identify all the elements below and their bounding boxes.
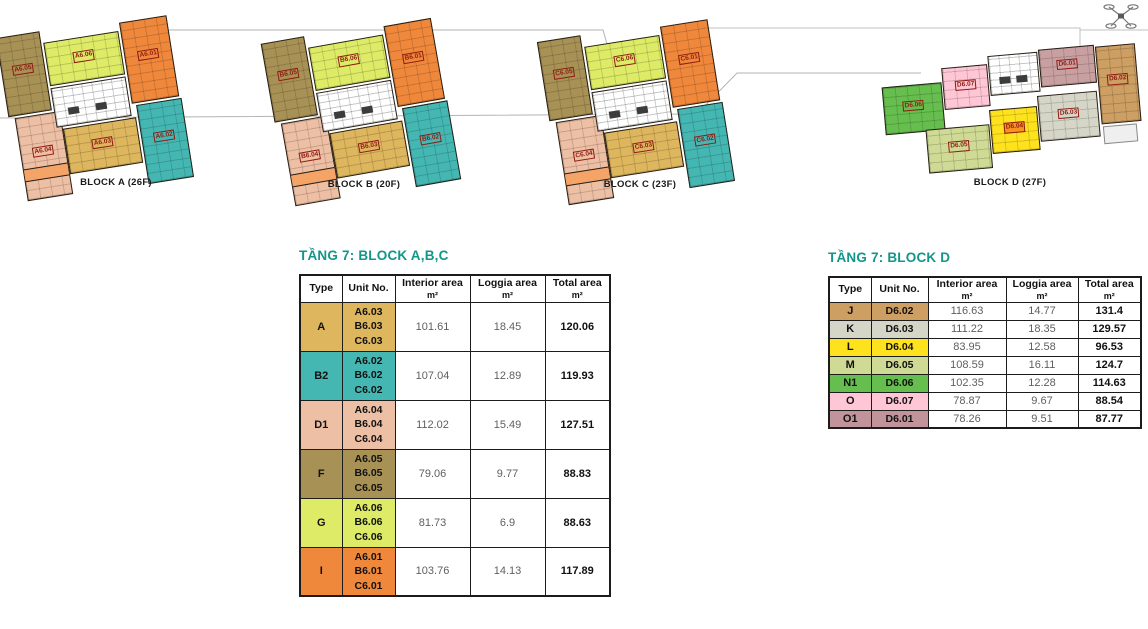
loggia-cell: 14.13 <box>470 547 545 596</box>
unit-label: D6.04 <box>1004 122 1026 134</box>
col-header-unit: Unit No. <box>342 275 395 302</box>
plan-unit: D6.05 <box>925 124 993 173</box>
type-cell: N1 <box>829 374 871 392</box>
interior-cell: 101.61 <box>395 302 470 351</box>
col-header-type: Type <box>829 277 871 302</box>
loggia-cell: 14.77 <box>1006 302 1078 320</box>
total-cell: 117.89 <box>545 547 610 596</box>
area-table-abc: Type Unit No. Interior aream² Loggia are… <box>299 274 611 597</box>
plan-unit: D6.03 <box>1037 91 1101 142</box>
table-row: F A6.05B6.05C6.05 79.06 9.77 88.83 <box>300 449 610 498</box>
unit-no-cell: D6.01 <box>871 410 928 428</box>
unit-no-cell: D6.02 <box>871 302 928 320</box>
total-cell: 88.54 <box>1078 392 1141 410</box>
unit-label: B6.02 <box>419 132 442 146</box>
unit-label: B6.01 <box>402 51 425 65</box>
plan-unit: A6.03 <box>63 117 143 174</box>
col-header-type: Type <box>300 275 342 302</box>
balcony-outline <box>1103 123 1138 144</box>
plan-unit: D6.02 <box>1095 43 1142 124</box>
type-cell: K <box>829 320 871 338</box>
type-cell: F <box>300 449 342 498</box>
type-cell: O <box>829 392 871 410</box>
plan-unit: C6.03 <box>604 121 684 178</box>
interior-cell: 111.22 <box>928 320 1006 338</box>
unit-no-cell: D6.03 <box>871 320 928 338</box>
total-cell: 88.63 <box>545 498 610 547</box>
table-row: G A6.06B6.06C6.06 81.73 6.9 88.63 <box>300 498 610 547</box>
loggia-cell: 9.51 <box>1006 410 1078 428</box>
table-row: O1 D6.01 78.26 9.51 87.77 <box>829 410 1141 428</box>
type-cell: O1 <box>829 410 871 428</box>
col-header-loggia: Loggia aream² <box>1006 277 1078 302</box>
loggia-cell: 18.35 <box>1006 320 1078 338</box>
plan-unit: A6.01 <box>119 15 179 103</box>
caption-block-a: BLOCK A (26F) <box>36 177 196 188</box>
total-cell: 129.57 <box>1078 320 1141 338</box>
interior-cell: 108.59 <box>928 356 1006 374</box>
unit-no-cell: A6.01B6.01C6.01 <box>342 547 395 596</box>
unit-label: B6.03 <box>358 140 381 154</box>
unit-label: B6.06 <box>337 53 360 67</box>
loggia-cell: 15.49 <box>470 400 545 449</box>
unit-label: C6.02 <box>694 134 717 147</box>
unit-no-cell: A6.04B6.04C6.04 <box>342 400 395 449</box>
interior-cell: 79.06 <box>395 449 470 498</box>
table-row: J D6.02 116.63 14.77 131.4 <box>829 302 1141 320</box>
header-row: Type Unit No. Interior aream² Loggia are… <box>300 275 610 302</box>
total-cell: 88.83 <box>545 449 610 498</box>
unit-no-cell: D6.04 <box>871 338 928 356</box>
interior-cell: 102.35 <box>928 374 1006 392</box>
col-header-unit: Unit No. <box>871 277 928 302</box>
interior-cell: 78.87 <box>928 392 1006 410</box>
plan-unit: D6.06 <box>882 82 946 135</box>
loggia-cell: 16.11 <box>1006 356 1078 374</box>
col-header-total: Total aream² <box>545 275 610 302</box>
header-row: Type Unit No. Interior aream² Loggia are… <box>829 277 1141 302</box>
loggia-cell: 12.58 <box>1006 338 1078 356</box>
loggia-cell: 12.28 <box>1006 374 1078 392</box>
total-cell: 114.63 <box>1078 374 1141 392</box>
unit-label: D6.01 <box>1056 58 1078 70</box>
table-row: K D6.03 111.22 18.35 129.57 <box>829 320 1141 338</box>
loggia-cell: 6.9 <box>470 498 545 547</box>
table-row: M D6.05 108.59 16.11 124.7 <box>829 356 1141 374</box>
plan-unit: D6.07 <box>941 64 990 110</box>
unit-no-cell: A6.06B6.06C6.06 <box>342 498 395 547</box>
table-block-d: TẦNG 7: BLOCK D Type Unit No. Interior a… <box>828 250 1142 429</box>
table-title-d: TẦNG 7: BLOCK D <box>828 250 1142 265</box>
col-header-interior: Interior aream² <box>928 277 1006 302</box>
unit-no-cell: D6.05 <box>871 356 928 374</box>
unit-no-cell: A6.05B6.05C6.05 <box>342 449 395 498</box>
type-cell: J <box>829 302 871 320</box>
table-row: A A6.03B6.03C6.03 101.61 18.45 120.06 <box>300 302 610 351</box>
interior-cell: 116.63 <box>928 302 1006 320</box>
total-cell: 124.7 <box>1078 356 1141 374</box>
interior-cell: 81.73 <box>395 498 470 547</box>
type-cell: A <box>300 302 342 351</box>
unit-label: D6.02 <box>1107 73 1129 85</box>
unit-label: C6.05 <box>553 67 576 80</box>
table-row: O D6.07 78.87 9.67 88.54 <box>829 392 1141 410</box>
plan-unit: B6.03 <box>329 120 410 178</box>
interior-cell: 107.04 <box>395 351 470 400</box>
type-cell: B2 <box>300 351 342 400</box>
total-cell: 87.77 <box>1078 410 1141 428</box>
loggia-cell: 18.45 <box>470 302 545 351</box>
plan-unit: D6.01 <box>1038 45 1097 88</box>
table-row: B2 A6.02B6.02C6.02 107.04 12.89 119.93 <box>300 351 610 400</box>
total-cell: 120.06 <box>545 302 610 351</box>
type-cell: L <box>829 338 871 356</box>
col-header-interior: Interior aream² <box>395 275 470 302</box>
floor-plan-block-d: D6.06 D6.07 D6.01 D6.02 D6.05 D6.04 D6.0… <box>879 39 1148 179</box>
loggia-cell: 12.89 <box>470 351 545 400</box>
type-cell: M <box>829 356 871 374</box>
col-header-total: Total aream² <box>1078 277 1141 302</box>
unit-label: A6.05 <box>12 63 35 76</box>
unit-no-cell: D6.06 <box>871 374 928 392</box>
unit-label: D6.07 <box>955 79 977 91</box>
unit-label: C6.04 <box>573 149 596 162</box>
total-cell: 131.4 <box>1078 302 1141 320</box>
unit-no-cell: A6.02B6.02C6.02 <box>342 351 395 400</box>
interior-cell: 83.95 <box>928 338 1006 356</box>
type-cell: G <box>300 498 342 547</box>
plan-unit: D6.04 <box>989 106 1041 154</box>
caption-block-c: BLOCK C (23F) <box>560 179 720 190</box>
table-block-abc: TẦNG 7: BLOCK A,B,C Type Unit No. Interi… <box>299 248 611 597</box>
table-row: L D6.04 83.95 12.58 96.53 <box>829 338 1141 356</box>
table-row: N1 D6.06 102.35 12.28 114.63 <box>829 374 1141 392</box>
unit-label: B6.04 <box>299 149 322 163</box>
unit-label: A6.03 <box>91 136 114 149</box>
elevator-core <box>987 52 1040 96</box>
table-row: D1 A6.04B6.04C6.04 112.02 15.49 127.51 <box>300 400 610 449</box>
loggia-cell: 9.77 <box>470 449 545 498</box>
unit-label: A6.04 <box>32 145 55 158</box>
loggia-cell: 9.67 <box>1006 392 1078 410</box>
unit-label: A6.02 <box>153 130 176 143</box>
total-cell: 119.93 <box>545 351 610 400</box>
type-cell: I <box>300 547 342 596</box>
area-table-d: Type Unit No. Interior aream² Loggia are… <box>828 276 1142 429</box>
unit-label: C6.03 <box>632 140 655 153</box>
unit-no-cell: D6.07 <box>871 392 928 410</box>
unit-label: D6.05 <box>948 140 970 152</box>
unit-label: D6.06 <box>902 100 924 112</box>
unit-label: C6.06 <box>613 53 636 66</box>
interior-cell: 103.76 <box>395 547 470 596</box>
caption-block-d: BLOCK D (27F) <box>930 177 1090 188</box>
col-header-loggia: Loggia aream² <box>470 275 545 302</box>
unit-label: A6.06 <box>72 49 95 62</box>
interior-cell: 112.02 <box>395 400 470 449</box>
unit-label: C6.01 <box>678 52 701 65</box>
drone-icon <box>1100 2 1142 30</box>
type-cell: D1 <box>300 400 342 449</box>
plan-unit: C6.01 <box>660 19 720 107</box>
floor-plan-block-a: A6.05 A6.06 A6.01 A6.04 A6.03 A6.02 <box>0 11 194 205</box>
unit-label: D6.03 <box>1058 108 1080 120</box>
interior-cell: 78.26 <box>928 410 1006 428</box>
table-title-abc: TẦNG 7: BLOCK A,B,C <box>299 248 611 263</box>
total-cell: 96.53 <box>1078 338 1141 356</box>
unit-label: B6.05 <box>277 68 300 82</box>
unit-label: A6.01 <box>137 48 160 61</box>
caption-block-b: BLOCK B (20F) <box>284 179 444 190</box>
table-row: I A6.01B6.01C6.01 103.76 14.13 117.89 <box>300 547 610 596</box>
total-cell: 127.51 <box>545 400 610 449</box>
unit-no-cell: A6.03B6.03C6.03 <box>342 302 395 351</box>
